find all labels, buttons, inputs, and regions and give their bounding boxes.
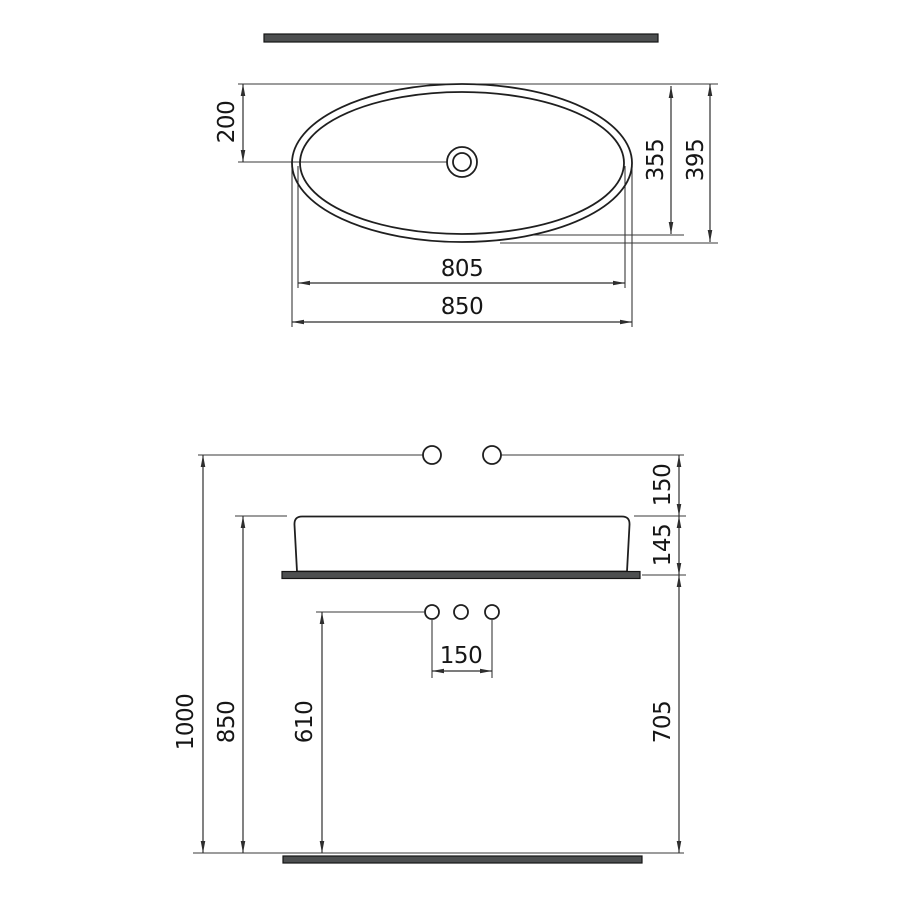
- dim-deck-holes-spacing: 150: [432, 643, 492, 671]
- dim-wall-holes-above-rim: 150: [650, 455, 679, 516]
- wall-faucet-holes: [423, 446, 501, 464]
- dim-label-basin-outer-length: 850: [441, 294, 483, 320]
- dim-label-wall-holes-above-rim: 150: [650, 464, 676, 506]
- wall-hole-left-circle: [423, 446, 441, 464]
- dim-label-deck-holes-spacing: 150: [440, 643, 482, 669]
- top-view-extension-lines: [238, 84, 718, 327]
- elevation-view: 1000 850 610 150 145 705 150: [173, 446, 686, 863]
- dim-label-basin-inner-length: 805: [441, 256, 483, 282]
- dim-label-basin-height: 145: [650, 524, 676, 566]
- dim-basin-inner-width: 355: [643, 86, 671, 234]
- drain-outer-circle: [447, 147, 477, 177]
- basin-inner-ellipse: [300, 92, 624, 234]
- dim-basin-outer-width: 395: [683, 84, 710, 242]
- dim-basin-inner-length: 805: [298, 256, 625, 283]
- dim-label-basin-outer-width: 395: [683, 139, 709, 181]
- dim-center-offset: 200: [214, 84, 243, 162]
- wall-bar: [264, 34, 658, 42]
- dim-label-center-offset: 200: [214, 101, 240, 143]
- deck-hole-middle-circle: [454, 605, 468, 619]
- dim-label-total-height: 1000: [173, 694, 199, 751]
- dim-below-worktop: 705: [650, 575, 679, 853]
- dim-label-below-worktop: 705: [650, 701, 676, 743]
- dim-label-worktop-height: 850: [214, 701, 240, 743]
- drain-inner-circle: [453, 153, 471, 171]
- basin-profile: [294, 517, 629, 572]
- basin-plan-outline: [292, 84, 632, 242]
- dim-deck-holes-height: 610: [292, 612, 322, 853]
- drawing-page: 200 355 395 805 850: [0, 0, 900, 900]
- floor-bar: [283, 856, 642, 863]
- dim-label-deck-holes-height: 610: [292, 701, 318, 743]
- dim-basin-height: 145: [650, 516, 679, 575]
- deck-faucet-holes: [425, 605, 499, 619]
- wall-hole-right-circle: [483, 446, 501, 464]
- dim-label-basin-inner-width: 355: [643, 139, 669, 181]
- top-view: 200 355 395 805 850: [214, 34, 718, 327]
- dim-basin-outer-length: 850: [292, 294, 632, 322]
- deck-hole-right-circle: [485, 605, 499, 619]
- dim-total-height: 1000: [173, 455, 203, 853]
- basin-outer-ellipse: [292, 84, 632, 242]
- drawing-canvas: 200 355 395 805 850: [0, 0, 900, 900]
- worktop-bar: [282, 572, 640, 579]
- deck-hole-left-circle: [425, 605, 439, 619]
- dim-worktop-height: 850: [214, 516, 243, 853]
